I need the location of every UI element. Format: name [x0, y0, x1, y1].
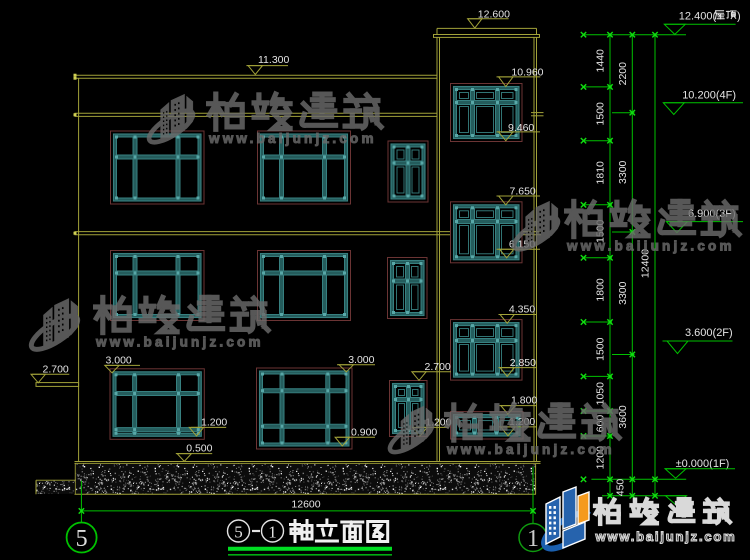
svg-text:0.900: 0.900 [351, 426, 377, 438]
svg-text:www.baijunjz.com: www.baijunjz.com [208, 131, 377, 146]
svg-text:12.400(: 12.400( [679, 11, 717, 23]
svg-text:2.700: 2.700 [43, 363, 69, 375]
svg-text:www.baijunjz.com: www.baijunjz.com [566, 239, 735, 254]
svg-text:1440: 1440 [595, 49, 607, 73]
svg-text:4.350: 4.350 [509, 304, 535, 316]
svg-text:1800: 1800 [595, 278, 607, 302]
svg-text:10.200(4F): 10.200(4F) [682, 90, 736, 102]
svg-text:3.600(2F): 3.600(2F) [685, 327, 733, 339]
svg-text:3.000: 3.000 [348, 354, 374, 366]
svg-text:1: 1 [268, 523, 277, 542]
svg-text:2200: 2200 [617, 62, 629, 86]
svg-text:3300: 3300 [617, 160, 629, 184]
svg-text:1050: 1050 [595, 382, 607, 406]
svg-text:3300: 3300 [617, 281, 629, 305]
svg-text:11.300: 11.300 [258, 54, 289, 66]
svg-text:1.200: 1.200 [201, 417, 227, 429]
svg-text:3600: 3600 [617, 405, 629, 429]
svg-text:450: 450 [615, 479, 627, 497]
svg-text:12600: 12600 [291, 499, 320, 511]
svg-text:www.baijunjz.com: www.baijunjz.com [446, 442, 615, 457]
svg-text:3.000: 3.000 [106, 354, 132, 366]
svg-text:1: 1 [527, 526, 539, 552]
svg-text:5: 5 [76, 526, 88, 552]
svg-text:): ) [737, 11, 741, 23]
svg-text:www.baijunjz.com: www.baijunjz.com [595, 529, 737, 544]
svg-text:1500: 1500 [595, 102, 607, 126]
svg-text:5: 5 [234, 523, 243, 542]
svg-text:1500: 1500 [595, 337, 607, 361]
svg-text:1810: 1810 [595, 161, 607, 185]
svg-text:0.500: 0.500 [186, 443, 212, 455]
svg-text:www.baijunjz.com: www.baijunjz.com [95, 335, 264, 350]
